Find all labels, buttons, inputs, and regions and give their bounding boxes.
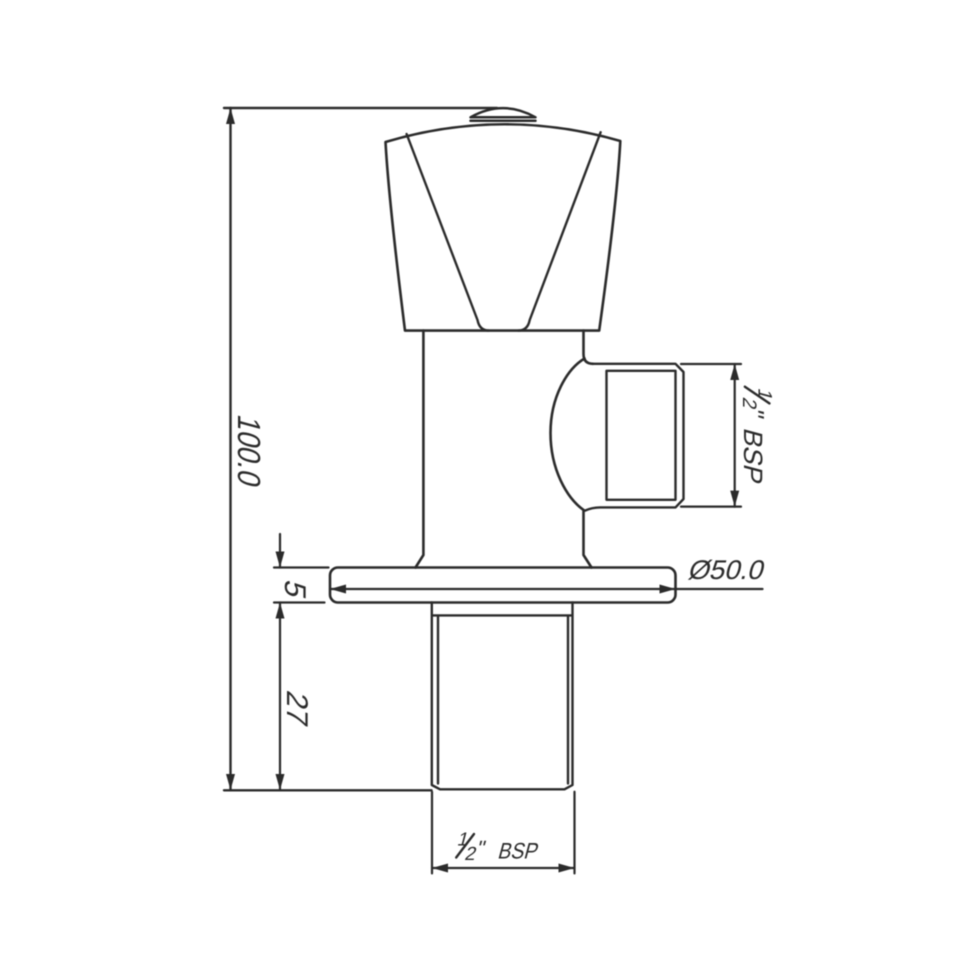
svg-text:Ø50.0: Ø50.0 (685, 554, 768, 584)
svg-text:100.0: 100.0 (231, 412, 266, 491)
svg-text:27: 27 (280, 687, 313, 729)
svg-text:5: 5 (278, 577, 311, 603)
svg-text:BSP: BSP (738, 425, 767, 487)
svg-text:BSP: BSP (496, 838, 542, 864)
